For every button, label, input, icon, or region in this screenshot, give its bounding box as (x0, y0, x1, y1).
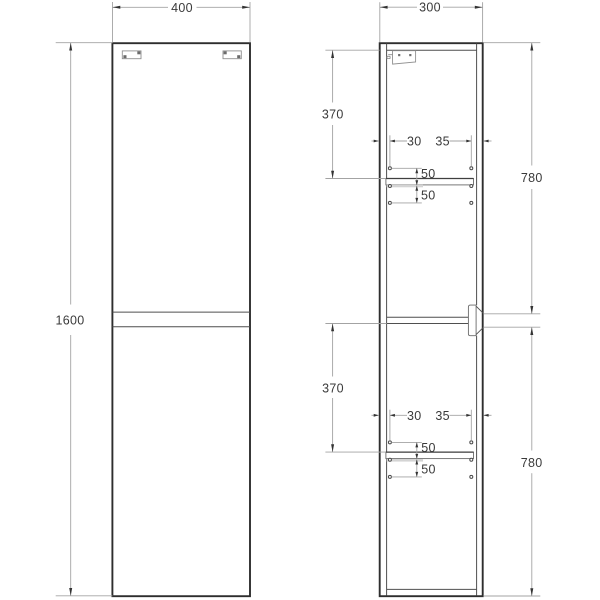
svg-text:50: 50 (421, 167, 436, 181)
svg-text:30: 30 (407, 409, 422, 423)
svg-text:400: 400 (171, 1, 193, 15)
svg-text:780: 780 (521, 456, 543, 470)
svg-text:1600: 1600 (55, 313, 84, 327)
svg-text:30: 30 (407, 135, 422, 149)
svg-text:50: 50 (421, 441, 436, 455)
svg-text:35: 35 (435, 135, 450, 149)
svg-text:50: 50 (421, 188, 436, 202)
svg-text:370: 370 (322, 107, 344, 121)
svg-text:50: 50 (421, 463, 436, 477)
svg-text:35: 35 (435, 409, 450, 423)
svg-text:370: 370 (322, 381, 344, 395)
svg-text:300: 300 (419, 1, 441, 15)
svg-text:780: 780 (521, 171, 543, 185)
